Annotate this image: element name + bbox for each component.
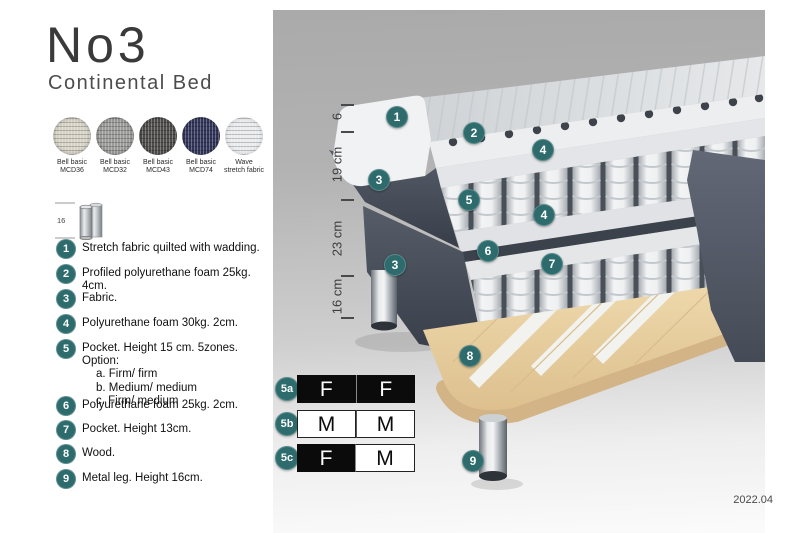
swatch-bell-basic-mcd74: Bell basicMCD74 <box>181 117 221 175</box>
swatch-bell-basic-mcd36: Bell basicMCD36 <box>52 117 92 175</box>
legend-text-6: Polyurethane foam 25kg. 2cm. <box>82 396 272 412</box>
legend-text-3: Fabric. <box>82 289 272 305</box>
callout-2: 2 <box>463 122 485 144</box>
legend-text-8: Wood. <box>82 444 272 460</box>
legend-item-4: 4 Polyurethane foam 30kg. 2cm. <box>56 314 272 330</box>
swatch-bell-basic-mcd32: Bell basicMCD32 <box>95 117 135 175</box>
page: No3 Continental Bed Bell basicMCD36 Bell… <box>0 0 800 533</box>
legend-text-4: Polyurethane foam 30kg. 2cm. <box>82 314 272 330</box>
info-column: No3 Continental Bed Bell basicMCD36 Bell… <box>0 0 273 533</box>
option-a: a. Firm/ firm <box>96 368 272 382</box>
callout-8: 8 <box>459 345 481 367</box>
legend-number-1: 1 <box>56 239 76 259</box>
illustration-panel: 6 19 cm 23 cm 16 cm 1 2 4 3 5 4 6 3 7 8 … <box>273 10 765 533</box>
firmness-row-5a: F F <box>297 375 415 403</box>
option-b: b. Medium/ medium <box>96 382 272 396</box>
swatch-label: Bell basic <box>186 159 216 166</box>
legend-item-7: 7 Pocket. Height 13cm. <box>56 420 272 436</box>
dimension-label-base: 23 cm <box>330 211 345 267</box>
swatch-label: Wave <box>235 159 253 166</box>
callout-1: 1 <box>386 106 408 128</box>
product-subtitle: Continental Bed <box>48 72 213 95</box>
swatch-label: Bell basic <box>100 159 130 166</box>
firmness-cell: M <box>297 410 356 438</box>
legend-text-5: Pocket. Height 15 cm. 5zones. Option: <box>82 339 272 368</box>
fabric-swatch-icon <box>225 117 263 155</box>
callout-3-lower: 3 <box>384 254 406 276</box>
firmness-row-label-5a: 5a <box>275 377 299 401</box>
legend-number-3: 3 <box>56 289 76 309</box>
dimension-label-mattress: 19 cm <box>330 137 345 193</box>
legend-number-5: 5 <box>56 339 76 359</box>
swatch-label: Bell basic <box>57 159 87 166</box>
firmness-row-5c: F M <box>297 444 415 472</box>
dimension-tick <box>341 199 354 201</box>
product-title: No3 <box>46 16 150 74</box>
callout-5: 5 <box>458 189 480 211</box>
callout-3-upper: 3 <box>368 169 390 191</box>
firmness-cell: F <box>297 444 355 472</box>
swatch-wave-stretch: Wavestretch fabric <box>224 117 264 175</box>
fabric-swatch-icon <box>139 117 177 155</box>
legend-number-8: 8 <box>56 444 76 464</box>
firmness-cell: M <box>356 410 415 438</box>
legend-text-9: Metal leg. Height 16cm. <box>82 469 272 485</box>
callout-4-lower: 4 <box>533 204 555 226</box>
legend-number-7: 7 <box>56 420 76 440</box>
version-date: 2022.04 <box>703 494 773 506</box>
firmness-cell: F <box>297 375 356 403</box>
firmness-cell: M <box>355 444 415 472</box>
leg-dimension-icon: 16 <box>53 194 117 244</box>
firmness-row-label-5b: 5b <box>275 412 299 436</box>
legend-number-4: 4 <box>56 314 76 334</box>
legend-item-3: 3 Fabric. <box>56 289 272 305</box>
swatch-label: Bell basic <box>143 159 173 166</box>
callout-6: 6 <box>477 240 499 262</box>
legend-number-6: 6 <box>56 396 76 416</box>
dimension-label-leg: 16 cm <box>330 269 345 325</box>
callout-7: 7 <box>541 253 563 275</box>
firmness-row-5b: M M <box>297 410 415 438</box>
legend-item-8: 8 Wood. <box>56 444 272 460</box>
legend-item-9: 9 Metal leg. Height 16cm. <box>56 469 272 485</box>
fabric-swatch-icon <box>182 117 220 155</box>
swatch-bell-basic-mcd43: Bell basicMCD43 <box>138 117 178 175</box>
leg-dimension-value: 16 <box>57 216 65 225</box>
fabric-swatches: Bell basicMCD36 Bell basicMCD32 Bell bas… <box>52 117 264 175</box>
fabric-swatch-icon <box>96 117 134 155</box>
legend-number-9: 9 <box>56 469 76 489</box>
callout-9: 9 <box>462 450 484 472</box>
firmness-cell: F <box>356 375 416 403</box>
firmness-row-label-5c: 5c <box>275 446 299 470</box>
legend-number-2: 2 <box>56 264 76 284</box>
callout-4-upper: 4 <box>532 139 554 161</box>
legend-item-6: 6 Polyurethane foam 25kg. 2cm. <box>56 396 272 412</box>
fabric-swatch-icon <box>53 117 91 155</box>
legend-text-1: Stretch fabric quilted with wadding. <box>82 239 272 255</box>
legend-item-1: 1 Stretch fabric quilted with wadding. <box>56 239 272 255</box>
legend-text-7: Pocket. Height 13cm. <box>82 420 272 436</box>
